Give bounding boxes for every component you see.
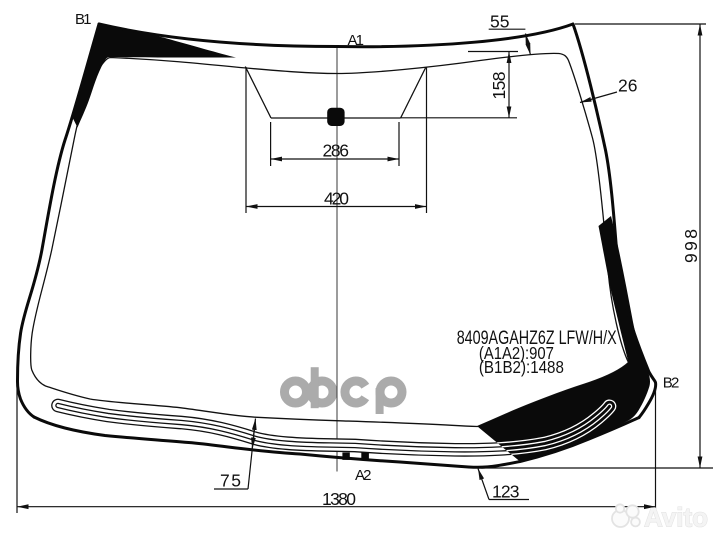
svg-text:Avito: Avito <box>644 503 708 533</box>
svg-text:A1: A1 <box>348 32 365 49</box>
svg-text:55: 55 <box>490 12 509 32</box>
svg-text:B2: B2 <box>663 375 680 392</box>
svg-text:123: 123 <box>492 482 520 502</box>
svg-text:B1: B1 <box>75 11 92 28</box>
svg-text:26: 26 <box>618 76 638 96</box>
svg-text:A2: A2 <box>355 467 372 484</box>
svg-text:286: 286 <box>323 141 350 161</box>
svg-text:420: 420 <box>324 189 349 209</box>
svg-text:75: 75 <box>220 471 241 491</box>
svg-text:1380: 1380 <box>322 489 356 509</box>
svg-text:(B1B2):1488: (B1B2):1488 <box>479 357 564 377</box>
svg-text:998: 998 <box>681 229 701 263</box>
svg-text:158: 158 <box>489 72 509 100</box>
